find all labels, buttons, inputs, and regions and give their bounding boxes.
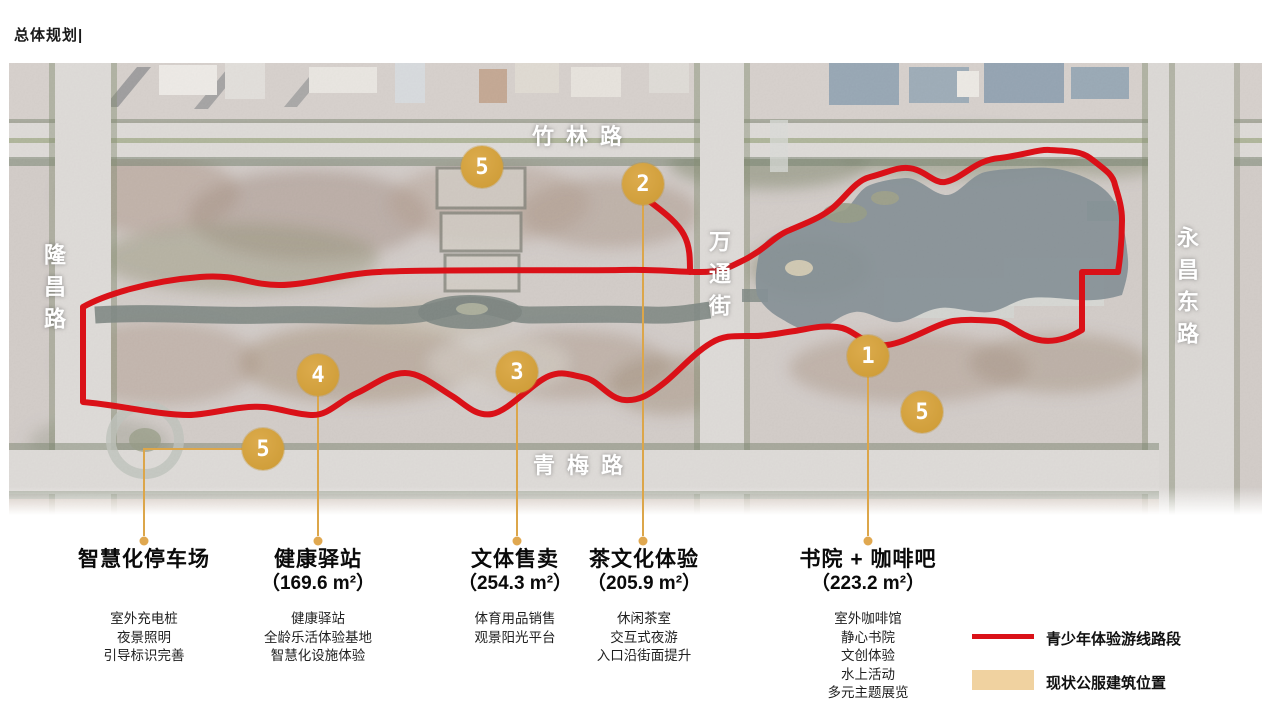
annotation-items: 健康驿站 全龄乐活体验基地 智慧化设施体验 xyxy=(208,610,428,666)
road-label-qingmei: 青梅路 xyxy=(533,455,635,477)
annotation-health-station: 健康驿站 （169.6 m²） 健康驿站 全龄乐活体验基地 智慧化设施体验 xyxy=(208,548,428,666)
annotation-area: （223.2 m²） xyxy=(758,572,978,598)
marker-number: 4 xyxy=(311,363,324,388)
marker-number: 2 xyxy=(636,172,649,197)
white-wash xyxy=(9,63,1262,515)
page-title: 总体规划| xyxy=(14,24,83,45)
marker-4: 4 xyxy=(297,354,339,396)
annotation-title: 茶文化体验 xyxy=(534,548,754,572)
satellite-map: 竹林路 青梅路 隆昌路 万通街 永昌东路 xyxy=(9,63,1262,515)
annotation-item: 智慧化设施体验 xyxy=(208,647,428,666)
road-label-zhulin: 竹林路 xyxy=(532,126,634,148)
annotation-item: 健康驿站 xyxy=(208,610,428,629)
road-label-longchang: 隆昌路 xyxy=(42,243,64,339)
annotation-item: 文创体验 xyxy=(758,647,978,666)
marker-2: 2 xyxy=(622,163,664,205)
marker-1: 1 xyxy=(847,335,889,377)
legend-building-swatch xyxy=(972,670,1034,690)
marker-5-west: 5 xyxy=(242,428,284,470)
annotation-item: 休闲茶室 xyxy=(534,610,754,629)
marker-number: 3 xyxy=(510,360,523,385)
legend-route-swatch xyxy=(972,634,1034,639)
annotation-item: 全龄乐活体验基地 xyxy=(208,629,428,648)
marker-number: 5 xyxy=(256,437,269,462)
legend-route-label: 青少年体验游线路段 xyxy=(1046,628,1181,649)
marker-5-north: 5 xyxy=(461,146,503,188)
annotation-title: 书院 + 咖啡吧 xyxy=(758,548,978,572)
road-label-wantong: 万通街 xyxy=(707,230,729,326)
planning-slide: { "page_title": "总体规划|", "map": { "roads… xyxy=(0,0,1262,727)
marker-3: 3 xyxy=(496,351,538,393)
annotation-item: 水上活动 xyxy=(758,666,978,685)
annotation-item: 静心书院 xyxy=(758,629,978,648)
annotation-library-cafe: 书院 + 咖啡吧 （223.2 m²） 室外咖啡馆 静心书院 文创体验 水上活动… xyxy=(758,548,978,703)
annotation-area: （205.9 m²） xyxy=(534,572,754,598)
annotation-item: 入口沿街面提升 xyxy=(534,647,754,666)
map-graphics xyxy=(9,63,1262,515)
marker-5-east: 5 xyxy=(901,391,943,433)
annotation-tea-culture: 茶文化体验 （205.9 m²） 休闲茶室 交互式夜游 入口沿街面提升 xyxy=(534,548,754,666)
annotation-item: 室外咖啡馆 xyxy=(758,610,978,629)
annotation-items: 休闲茶室 交互式夜游 入口沿街面提升 xyxy=(534,610,754,666)
marker-number: 5 xyxy=(915,400,928,425)
bottom-fade xyxy=(9,487,1262,515)
legend-building-label: 现状公服建筑位置 xyxy=(1046,672,1166,693)
annotation-area: （169.6 m²） xyxy=(208,572,428,598)
annotation-items: 室外咖啡馆 静心书院 文创体验 水上活动 多元主题展览 xyxy=(758,610,978,703)
annotation-item: 交互式夜游 xyxy=(534,629,754,648)
marker-number: 1 xyxy=(861,344,874,369)
annotation-item: 多元主题展览 xyxy=(758,684,978,703)
road-label-yongchang: 永昌东路 xyxy=(1175,226,1197,354)
annotation-title: 健康驿站 xyxy=(208,548,428,572)
marker-number: 5 xyxy=(475,155,488,180)
